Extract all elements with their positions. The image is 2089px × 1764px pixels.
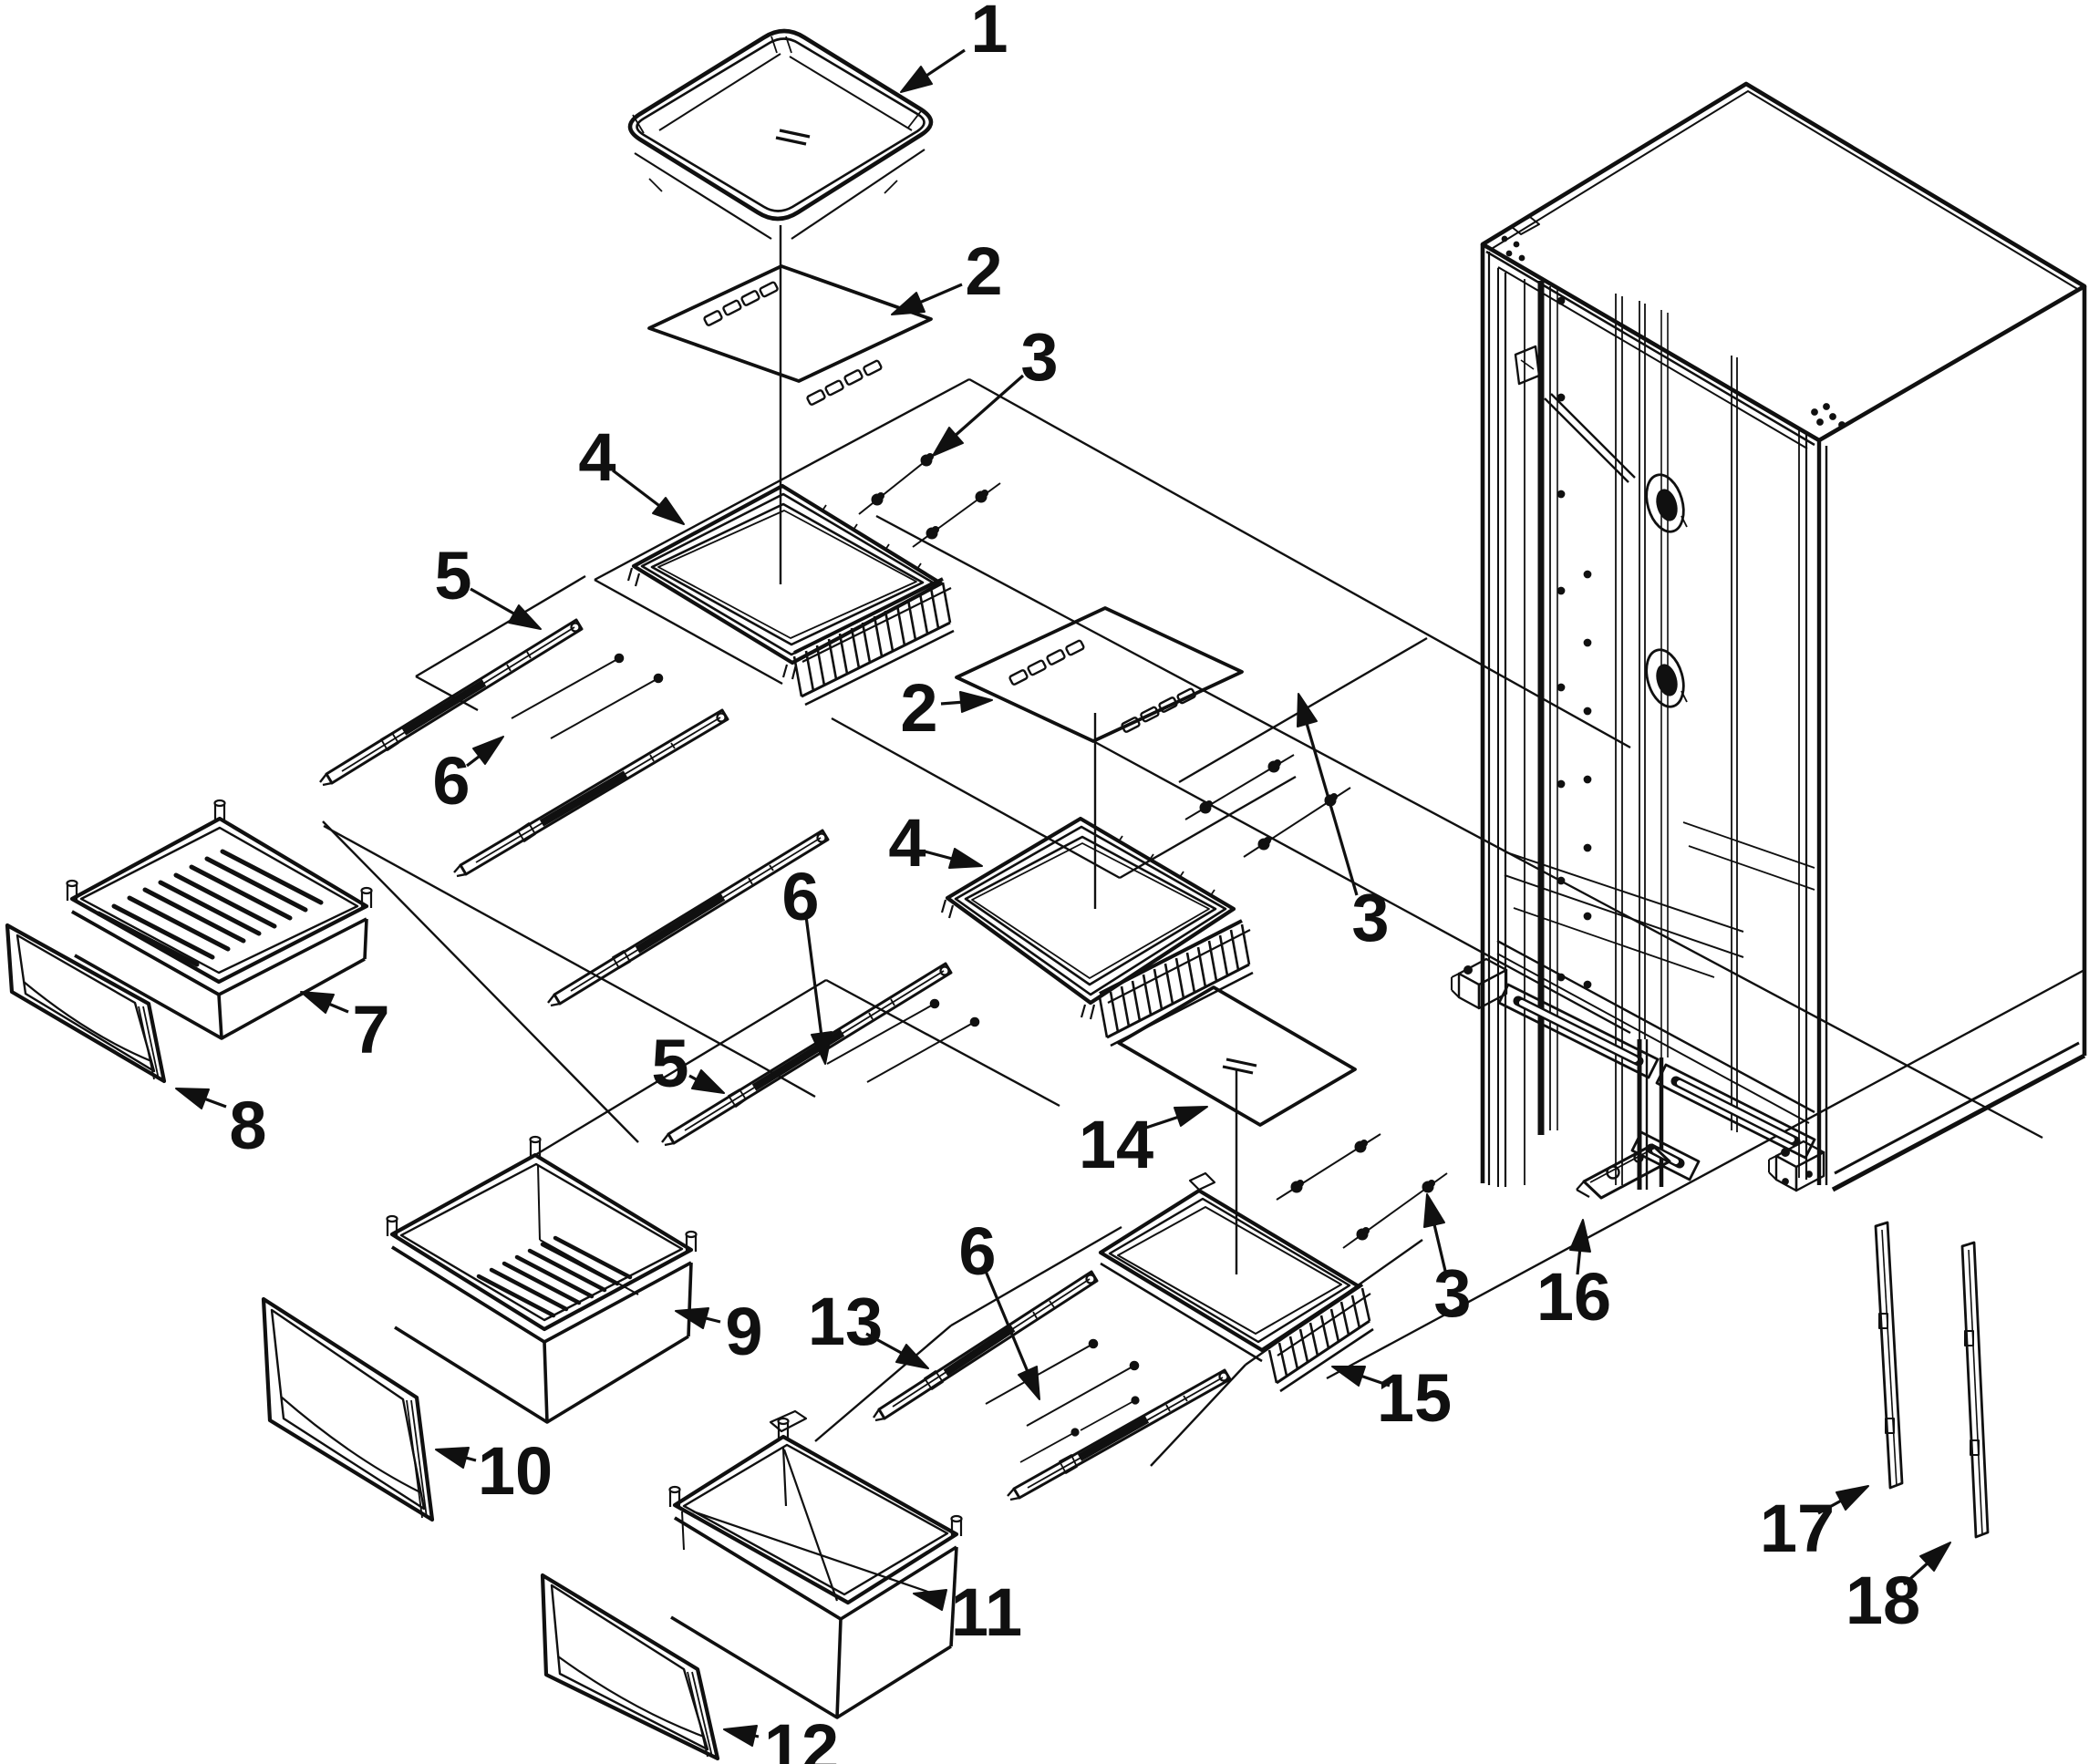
- svg-text:7: 7: [352, 992, 389, 1068]
- svg-text:15: 15: [1377, 1360, 1452, 1436]
- svg-text:5: 5: [651, 1026, 688, 1101]
- svg-text:11: 11: [951, 1574, 1022, 1650]
- svg-text:1: 1: [970, 0, 1008, 67]
- svg-text:12: 12: [764, 1710, 839, 1764]
- svg-text:4: 4: [578, 419, 615, 495]
- svg-text:18: 18: [1846, 1563, 1920, 1638]
- svg-text:14: 14: [1079, 1107, 1153, 1182]
- svg-text:13: 13: [808, 1284, 883, 1359]
- svg-text:10: 10: [478, 1433, 553, 1509]
- svg-text:16: 16: [1536, 1259, 1611, 1335]
- svg-text:3: 3: [1020, 319, 1058, 395]
- svg-text:5: 5: [434, 538, 471, 614]
- svg-text:2: 2: [965, 233, 1002, 309]
- svg-text:2: 2: [900, 670, 937, 746]
- svg-text:9: 9: [725, 1294, 762, 1369]
- svg-text:3: 3: [1433, 1255, 1471, 1331]
- svg-text:6: 6: [958, 1213, 996, 1289]
- svg-text:6: 6: [432, 743, 470, 819]
- svg-text:3: 3: [1351, 880, 1389, 955]
- svg-text:4: 4: [888, 805, 926, 881]
- svg-text:17: 17: [1760, 1491, 1835, 1566]
- svg-text:8: 8: [229, 1088, 266, 1163]
- svg-text:6: 6: [781, 859, 819, 934]
